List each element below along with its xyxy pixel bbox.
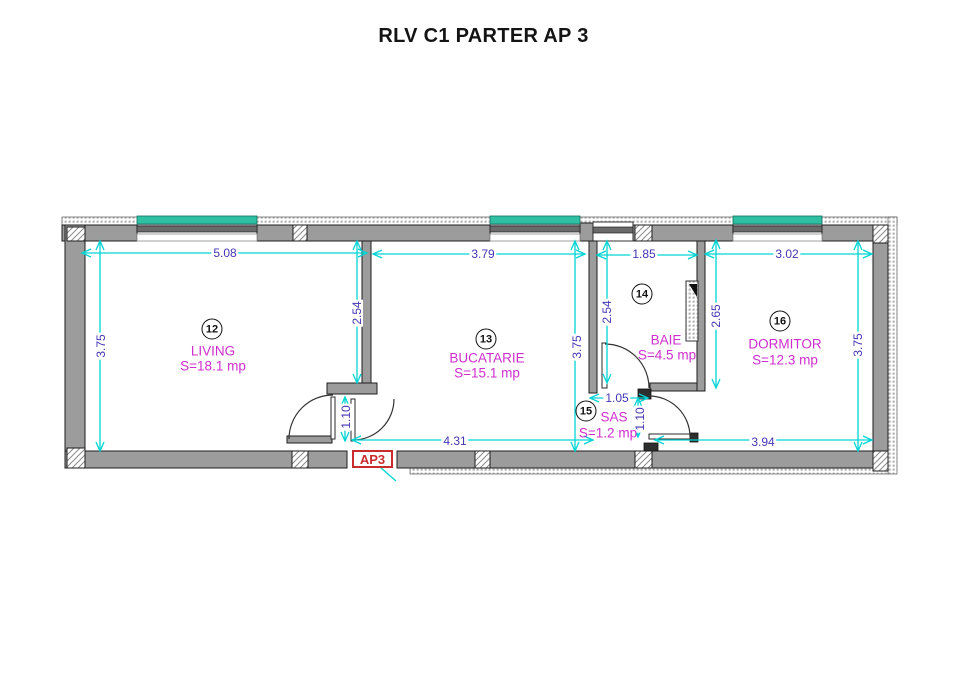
room-area-sas: S=1.2 mp [579, 426, 637, 440]
window-kitchen [490, 216, 580, 241]
column-bottom-left [67, 448, 85, 468]
door-arc-sas [649, 396, 690, 437]
room-area-living: S=18.1 mp [180, 359, 246, 373]
dim-label-bath-width: 1.85 [630, 248, 657, 260]
insulation-strip-bottom [410, 468, 888, 474]
door-leaf-bath [602, 343, 607, 388]
dim-label-sas-width: 1.05 [603, 392, 630, 404]
room-circle-bedroom: 16 [770, 311, 791, 332]
column-bottom-living [292, 451, 308, 468]
door-leaf-living [331, 397, 335, 439]
dim-label-kitchen-width: 3.79 [469, 248, 496, 260]
dim-label-living-height: 3.75 [95, 332, 107, 359]
partition-kitchen-bath [589, 241, 597, 393]
partition-entry-stub [287, 436, 332, 443]
dim-label-bedroom-height: 3.75 [852, 331, 864, 358]
dim-label-partition-living: 2.54 [351, 299, 363, 326]
dim-label-kitchen-bottom: 4.31 [441, 435, 468, 447]
door-leaf-sas [649, 434, 690, 439]
column-bottom-right [873, 451, 888, 471]
window-living [137, 216, 257, 241]
room-name-living: LIVING [191, 344, 235, 358]
column-top-bath [635, 225, 652, 241]
floor-plan-page: RLV C1 PARTER AP 3 [0, 0, 967, 683]
insulation-strip-right [888, 217, 897, 474]
dim-label-bedroom-width: 3.02 [773, 248, 800, 260]
dim-label-entry-door: 1.10 [340, 403, 352, 430]
room-name-bath: BAIE [651, 333, 682, 347]
column-bottom-kitchen [475, 451, 490, 468]
apartment-tag: AP3 [352, 450, 393, 468]
ap3-leader-line [380, 467, 396, 481]
partition-entry-tee [327, 383, 377, 394]
room-area-bath: S=4.5 mp [638, 348, 696, 362]
column-top-living [293, 225, 307, 241]
door-arc-entry [353, 399, 394, 440]
room-name-sas: SAS [600, 410, 627, 424]
dim-label-bath-right: 2.65 [710, 302, 722, 329]
room-name-bedroom: DORMITOR [748, 337, 821, 351]
dim-label-living-width: 5.08 [211, 247, 238, 259]
window-bath [593, 222, 633, 241]
wall-right [873, 225, 888, 468]
column-bottom-sas [635, 451, 652, 468]
room-area-kitchen: S=15.1 mp [454, 366, 520, 380]
dim-label-bedroom-bottom: 3.94 [749, 436, 776, 448]
room-circle-kitchen: 13 [476, 329, 497, 350]
dim-label-kitchen-height: 3.75 [571, 333, 583, 360]
room-circle-bath: 14 [632, 284, 653, 305]
vent-shaft [686, 281, 698, 341]
wall-top-2 [257, 225, 490, 241]
door-frame-sas-bottom [644, 443, 658, 451]
wall-left [65, 225, 85, 468]
column-top-right [873, 225, 888, 243]
room-name-kitchen: BUCATARIE [449, 351, 524, 365]
room-circle-sas: 15 [576, 401, 597, 422]
door-arc-living [289, 395, 333, 439]
dim-label-bath-left: 2.54 [601, 298, 613, 325]
column-top-left [67, 227, 85, 241]
room-area-bedroom: S=12.3 mp [752, 353, 818, 367]
window-bedroom [733, 216, 822, 241]
room-circle-living: 12 [202, 319, 223, 340]
